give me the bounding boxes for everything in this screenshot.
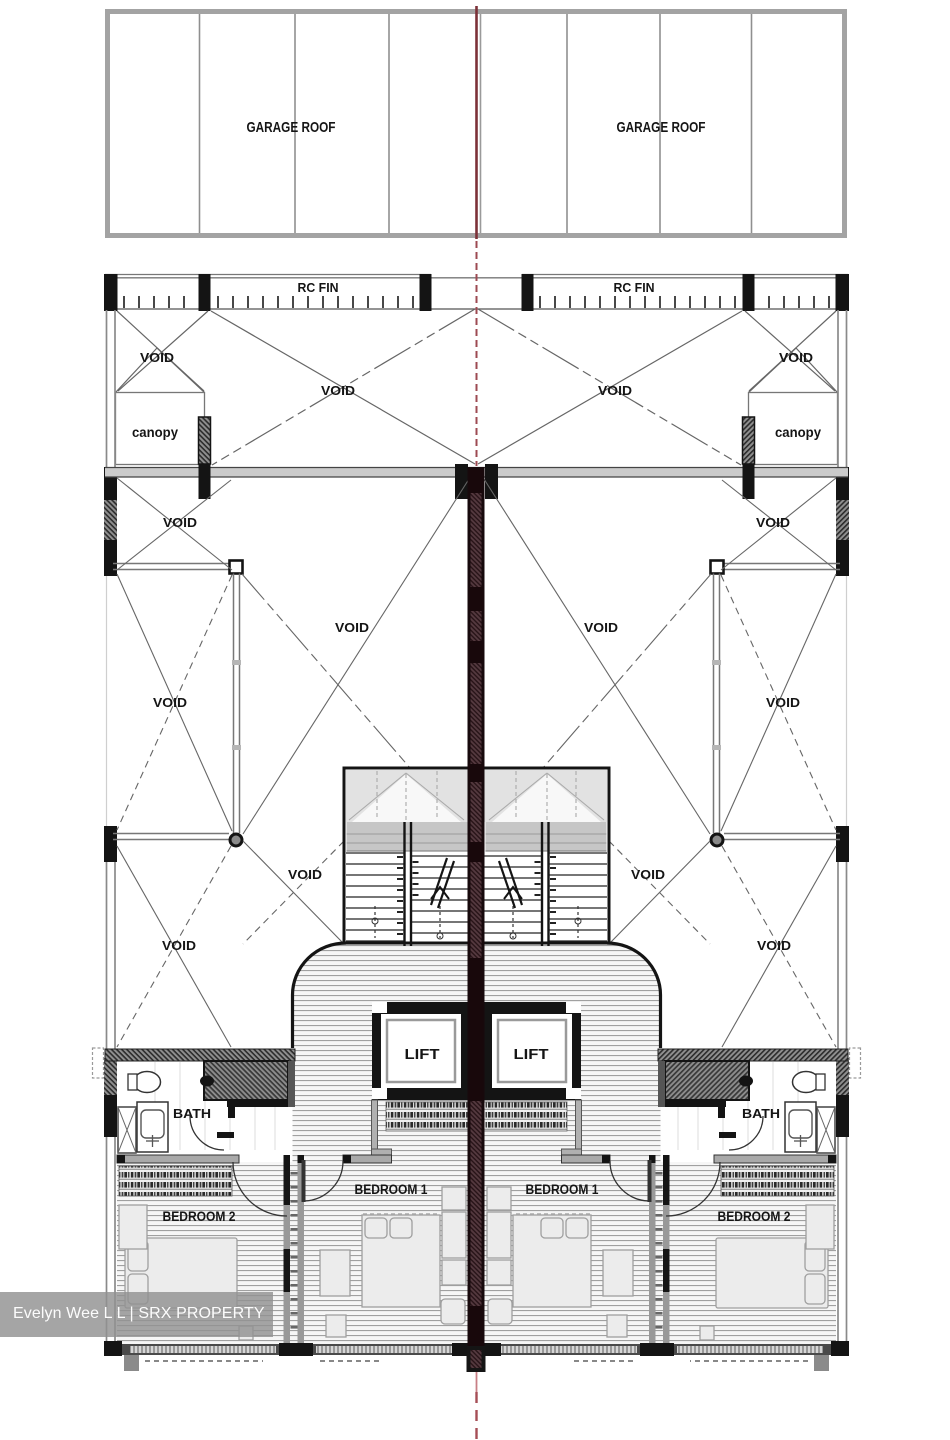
- svg-text:VOID: VOID: [756, 515, 790, 530]
- svg-text:LIFT: LIFT: [405, 1046, 440, 1063]
- svg-text:BEDROOM 1: BEDROOM 1: [526, 1182, 599, 1197]
- svg-text:GARAGE ROOF: GARAGE ROOF: [247, 119, 336, 136]
- svg-text:VOID: VOID: [335, 620, 369, 635]
- svg-text:BEDROOM 1: BEDROOM 1: [355, 1182, 428, 1197]
- svg-text:VOID: VOID: [757, 938, 791, 953]
- svg-text:RC FIN: RC FIN: [298, 281, 339, 295]
- svg-text:BATH: BATH: [173, 1106, 211, 1121]
- svg-text:BEDROOM 2: BEDROOM 2: [718, 1209, 791, 1224]
- svg-text:canopy: canopy: [775, 425, 821, 440]
- svg-text:RC FIN: RC FIN: [614, 281, 655, 295]
- svg-text:VOID: VOID: [153, 695, 187, 710]
- svg-text:VOID: VOID: [163, 515, 197, 530]
- svg-text:VOID: VOID: [584, 620, 618, 635]
- svg-text:BATH: BATH: [742, 1106, 780, 1121]
- svg-text:VOID: VOID: [631, 867, 665, 882]
- svg-text:LIFT: LIFT: [514, 1046, 549, 1063]
- svg-text:VOID: VOID: [766, 695, 800, 710]
- svg-text:VOID: VOID: [321, 383, 355, 398]
- svg-text:VOID: VOID: [162, 938, 196, 953]
- svg-text:canopy: canopy: [132, 425, 178, 440]
- svg-text:GARAGE ROOF: GARAGE ROOF: [617, 119, 706, 136]
- svg-text:BEDROOM 2: BEDROOM 2: [163, 1209, 236, 1224]
- svg-text:VOID: VOID: [598, 383, 632, 398]
- svg-text:VOID: VOID: [140, 350, 174, 365]
- svg-text:VOID: VOID: [779, 350, 813, 365]
- svg-text:VOID: VOID: [288, 867, 322, 882]
